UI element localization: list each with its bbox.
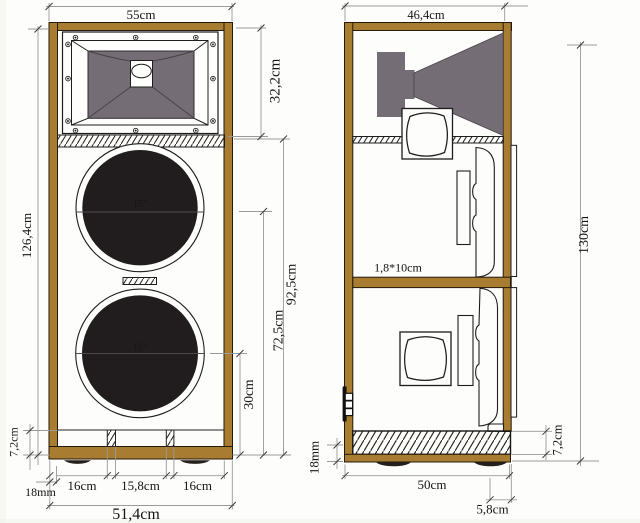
svg-text:30cm: 30cm [241,379,256,409]
svg-text:16cm: 16cm [68,478,97,493]
svg-text:1,8*10cm: 1,8*10cm [374,261,422,275]
svg-text:55cm: 55cm [127,7,156,22]
svg-text:16cm: 16cm [183,478,212,493]
svg-text:92,5cm: 92,5cm [285,264,300,306]
svg-text:51,4cm: 51,4cm [112,506,160,523]
svg-text:5,8cm: 5,8cm [476,502,508,517]
svg-text:15,8cm: 15,8cm [121,478,160,493]
svg-text:72,5cm: 72,5cm [272,310,287,352]
svg-text:18mm: 18mm [25,485,56,499]
svg-text:46,4cm: 46,4cm [407,8,444,22]
svg-text:18mm: 18mm [307,441,322,474]
svg-text:50cm: 50cm [418,477,447,492]
svg-text:130cm: 130cm [577,216,592,254]
svg-text:15": 15" [133,199,147,210]
svg-text:15": 15" [133,343,147,354]
svg-text:126,4cm: 126,4cm [19,213,34,258]
svg-text:7,2cm: 7,2cm [7,427,21,457]
svg-text:32,2cm: 32,2cm [268,58,284,103]
svg-text:7,2cm: 7,2cm [551,424,565,455]
